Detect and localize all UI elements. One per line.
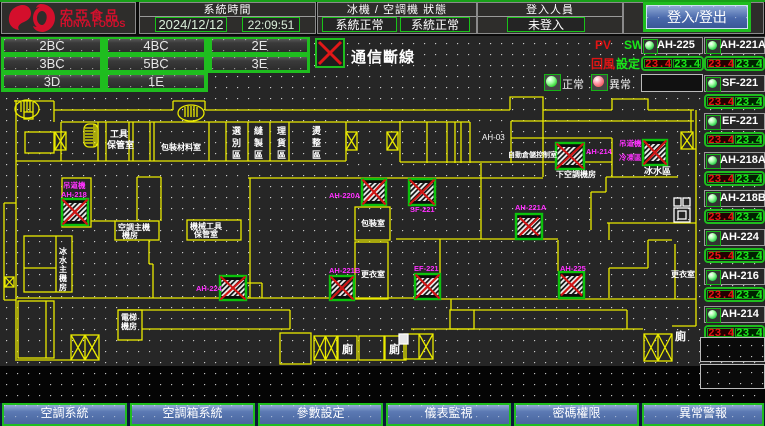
svg-text:AH-220A: AH-220A (329, 191, 361, 200)
svg-text:EF-221: EF-221 (414, 264, 439, 273)
svg-text:更衣室: 更衣室 (671, 269, 695, 279)
svg-text:理貨區: 理貨區 (277, 126, 286, 160)
svg-text:AH-214: AH-214 (586, 147, 613, 156)
svg-text:選別區: 選別區 (231, 126, 242, 160)
svg-text:機房: 機房 (121, 321, 137, 331)
svg-text:工具: 工具 (110, 129, 128, 139)
svg-text:AH-224: AH-224 (196, 284, 223, 293)
svg-text:下空調機房: 下空調機房 (556, 169, 596, 179)
svg-text:保管室: 保管室 (106, 139, 134, 150)
svg-text:吊道機: 吊道機 (63, 180, 86, 190)
svg-text:AH-03: AH-03 (482, 133, 505, 142)
svg-text:保管室: 保管室 (193, 229, 218, 239)
svg-text:縫製區: 縫製區 (253, 125, 264, 160)
svg-text:廁: 廁 (389, 342, 400, 356)
svg-text:廁: 廁 (675, 329, 686, 343)
svg-text:燙整區: 燙整區 (311, 125, 322, 160)
svg-text:冷凍區: 冷凍區 (619, 152, 642, 162)
svg-text:更衣室: 更衣室 (361, 269, 385, 279)
svg-text:AH-221A: AH-221A (515, 203, 547, 212)
svg-text:SF-221: SF-221 (410, 205, 435, 214)
svg-text:機房: 機房 (122, 230, 138, 240)
svg-text:吊道機: 吊道機 (619, 138, 642, 148)
svg-text:AH-225: AH-225 (560, 264, 586, 273)
svg-text:冰水主機房: 冰水主機房 (58, 246, 68, 292)
svg-text:自動倉儲控制室: 自動倉儲控制室 (508, 150, 557, 159)
svg-text:冰水區: 冰水區 (644, 165, 671, 176)
svg-text:包裝材料室: 包裝材料室 (160, 142, 201, 152)
svg-text:AH-218: AH-218 (61, 190, 87, 199)
svg-text:包裝室: 包裝室 (360, 218, 385, 228)
svg-text:電梯: 電梯 (121, 312, 137, 322)
svg-text:廁: 廁 (342, 342, 353, 356)
svg-text:AH-221B: AH-221B (329, 266, 361, 275)
